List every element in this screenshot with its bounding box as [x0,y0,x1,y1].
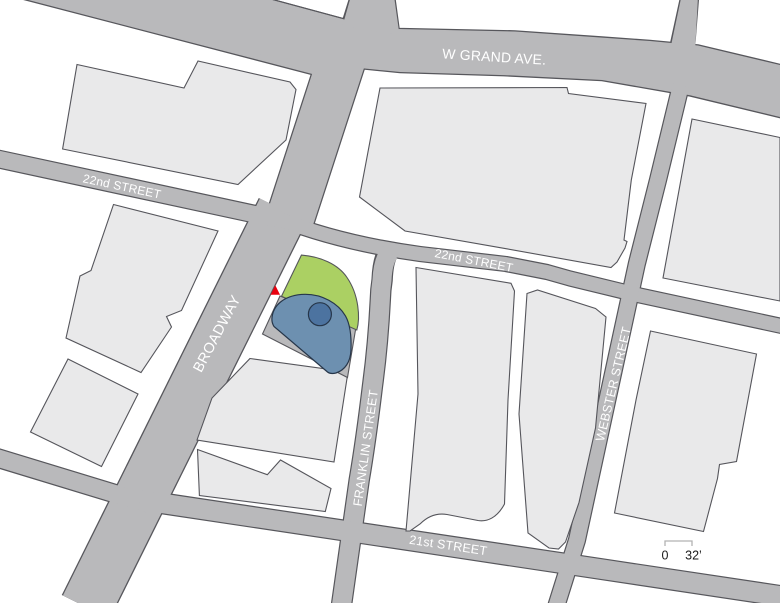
svg-text:0: 0 [662,548,669,562]
svg-text:22nd STREET: 22nd STREET [434,246,515,275]
svg-text:32’: 32’ [685,548,702,562]
svg-text:22nd STREET: 22nd STREET [82,171,163,201]
